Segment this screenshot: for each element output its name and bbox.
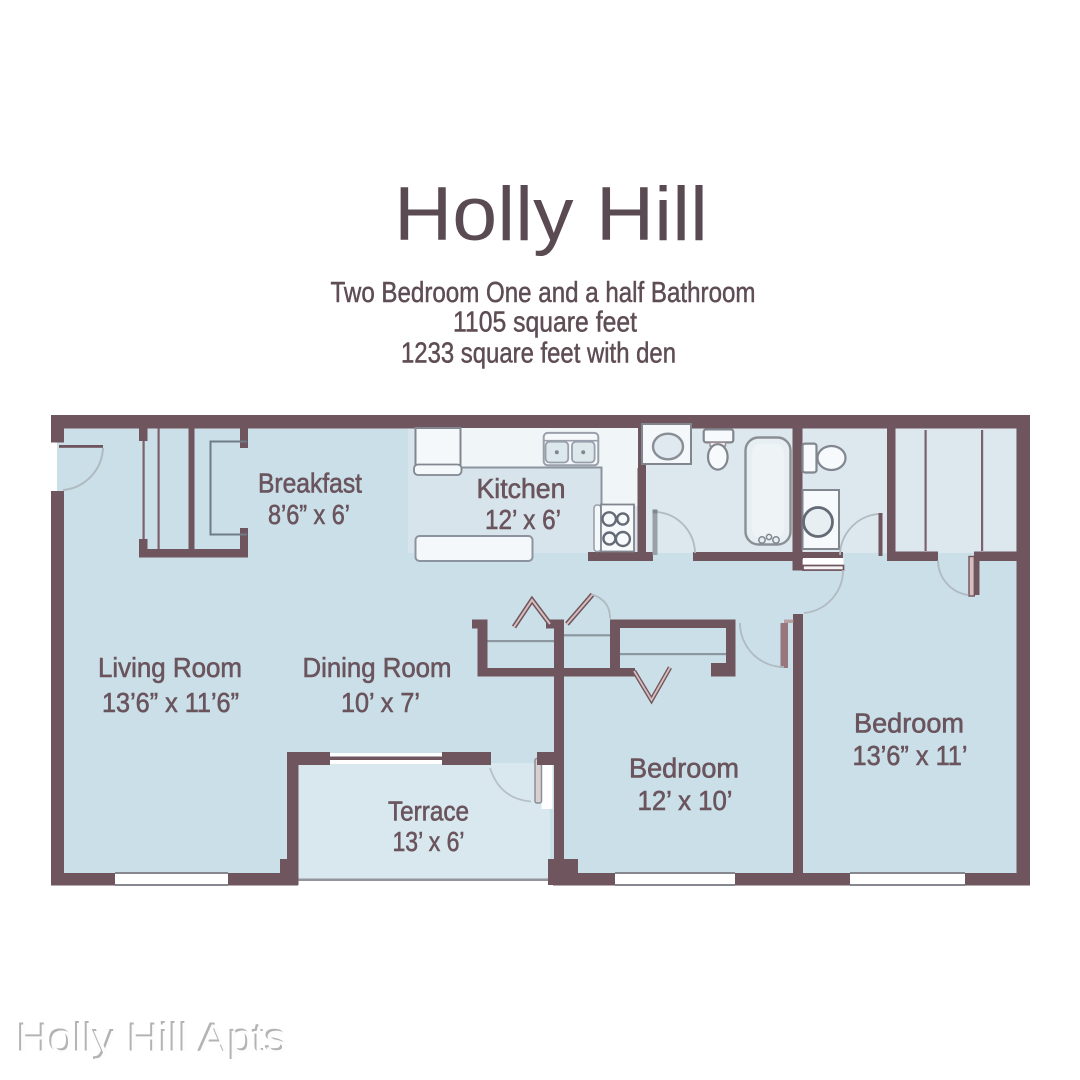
- svg-text:1233 square feet with den: 1233 square feet with den: [401, 338, 676, 370]
- svg-text:Holly Hill Apts: Holly Hill Apts: [18, 1016, 288, 1062]
- svg-text:1105 square feet: 1105 square feet: [453, 307, 637, 339]
- svg-text:12’ x 6’: 12’ x 6’: [485, 504, 561, 535]
- svg-text:Breakfast: Breakfast: [258, 468, 362, 499]
- svg-text:Dining Room: Dining Room: [303, 652, 452, 683]
- svg-text:Kitchen: Kitchen: [477, 473, 566, 504]
- svg-text:Terrace: Terrace: [388, 796, 469, 827]
- svg-text:10’ x 7’: 10’ x 7’: [341, 687, 420, 718]
- svg-text:13’6” x 11’6”: 13’6” x 11’6”: [102, 687, 239, 718]
- svg-text:13’6” x 11’: 13’6” x 11’: [853, 740, 968, 771]
- svg-text:12’ x 10’: 12’ x 10’: [638, 785, 733, 816]
- svg-text:Two Bedroom One and a half Bat: Two Bedroom One and a half Bathroom: [331, 277, 756, 309]
- svg-text:Bedroom: Bedroom: [629, 753, 739, 784]
- svg-text:13’ x 6’: 13’ x 6’: [393, 826, 465, 857]
- svg-text:8’6” x 6’: 8’6” x 6’: [268, 499, 350, 530]
- svg-text:Holly Hill: Holly Hill: [394, 172, 708, 257]
- svg-text:Living Room: Living Room: [98, 652, 242, 683]
- svg-text:Bedroom: Bedroom: [854, 708, 964, 739]
